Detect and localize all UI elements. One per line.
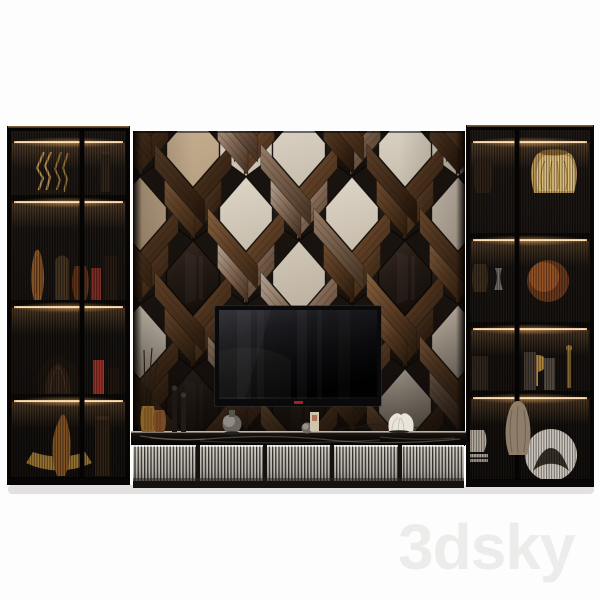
svg-text:3dsky: 3dsky — [398, 511, 576, 583]
